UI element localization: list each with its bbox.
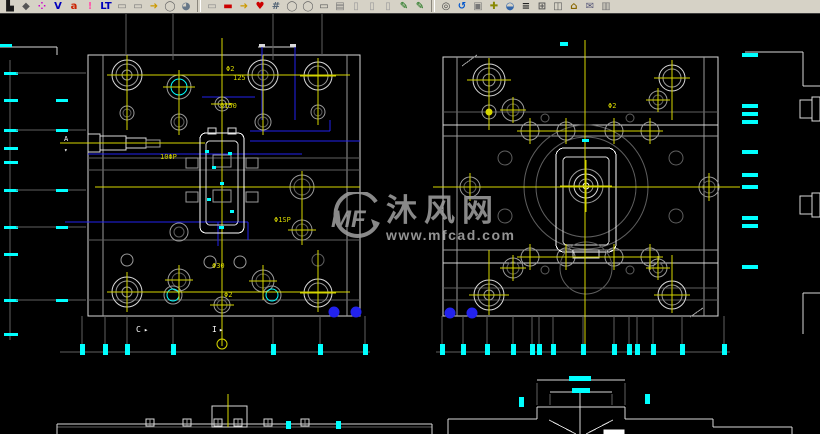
- dimension-tick: [742, 150, 758, 154]
- toolbar-icon-21[interactable]: ▭: [317, 0, 331, 12]
- centerline-crosshair: [560, 160, 612, 212]
- toolbar-icon-32[interactable]: ✚: [487, 0, 501, 12]
- toolbar-icon-18[interactable]: #: [269, 0, 283, 12]
- toolbar-icon-2[interactable]: ◆: [19, 0, 33, 12]
- toolbar-separator: [197, 0, 201, 12]
- bottom-right-view: [448, 376, 792, 434]
- dimension-tick: [4, 129, 18, 132]
- dimension-tick: [582, 139, 589, 142]
- dimension-tick: [4, 161, 18, 164]
- centerline-crosshair: [646, 88, 670, 112]
- dimension-tick: [4, 333, 18, 336]
- dimension-tick: [259, 44, 265, 47]
- dimension-tick: [551, 344, 556, 355]
- toolbar-separator: [431, 0, 435, 12]
- dimension-tick: [651, 344, 656, 355]
- toolbar: ▙◆⁘Va!LT▭▭➜◯◕▭▬➜♥#◯◯▭▤▯▯▯✎✎◎↺▣✚◒≡⊞◫⌂✉▥: [0, 0, 820, 14]
- toolbar-icon-9[interactable]: ▭: [131, 0, 145, 12]
- centerline-crosshair: [500, 255, 526, 281]
- dimension-tick: [627, 344, 632, 355]
- dimension-tick: [742, 120, 758, 124]
- dimension-tick: [461, 344, 466, 355]
- dimension-tick: [56, 189, 68, 192]
- toolbar-icon-26[interactable]: ✎: [397, 0, 411, 12]
- toolbar-icon-35[interactable]: ⊞: [535, 0, 549, 12]
- dimension-tick: [271, 344, 276, 355]
- drawing-label: ▸: [144, 326, 148, 334]
- toolbar-icon-36[interactable]: ◫: [551, 0, 565, 12]
- toolbar-icon-38[interactable]: ✉: [583, 0, 597, 12]
- drawing-label: A: [64, 135, 69, 143]
- drawing-label: 125: [233, 74, 246, 82]
- toolbar-icon-27[interactable]: ✎: [413, 0, 427, 12]
- cad-application-window: ▙◆⁘Va!LT▭▭➜◯◕▭▬➜♥#◯◯▭▤▯▯▯✎✎◎↺▣✚◒≡⊞◫⌂✉▥ Φ…: [0, 0, 820, 434]
- dimension-tick: [80, 344, 85, 355]
- dimension-tick: [205, 150, 209, 153]
- dimension-tick: [645, 394, 650, 404]
- bottom-left-view: [57, 394, 432, 434]
- dimension-tick: [228, 152, 232, 155]
- dimension-tick: [612, 344, 617, 355]
- dimension-tick: [125, 344, 130, 355]
- dimension-tick: [4, 72, 18, 75]
- toolbar-icon-23[interactable]: ▯: [349, 0, 363, 12]
- dimension-tick: [56, 299, 68, 302]
- cad-drawing[interactable]: Φ2125Φ15010ΦPΦ1SPΦ30Φ2C▸I▸A▾Φ2: [0, 14, 820, 434]
- dimension-tick: [4, 299, 18, 302]
- right-edge-view: [742, 52, 820, 334]
- toolbar-icon-6[interactable]: !: [83, 0, 97, 12]
- dimension-tick: [4, 147, 18, 150]
- dimension-tick: [220, 182, 224, 185]
- toolbar-icon-1[interactable]: ▙: [3, 0, 17, 12]
- drawing-label: C: [136, 325, 141, 334]
- dimension-tick: [4, 99, 18, 102]
- dimension-tick: [207, 198, 211, 201]
- dimension-tick: [572, 388, 590, 393]
- drawing-label: Φ30: [212, 262, 225, 270]
- toolbar-icon-10[interactable]: ➜: [147, 0, 161, 12]
- dimension-tick: [742, 53, 758, 57]
- toolbar-icon-30[interactable]: ↺: [455, 0, 469, 12]
- dimension-tick: [742, 112, 758, 116]
- dimension-tick: [230, 210, 234, 213]
- dimension-tick: [742, 173, 758, 177]
- toolbar-icon-39[interactable]: ▥: [599, 0, 613, 12]
- dimension-tick: [742, 224, 758, 228]
- drawing-label: ▸: [219, 326, 223, 334]
- right-view: Φ2: [433, 40, 740, 346]
- centerline-crosshair: [500, 97, 526, 123]
- toolbar-icon-3[interactable]: ⁘: [35, 0, 49, 12]
- drawing-label: Φ2: [608, 102, 616, 110]
- dimension-tick: [722, 344, 727, 355]
- drawing-label: Φ1SP: [274, 216, 291, 224]
- drawing-label: I: [212, 325, 217, 334]
- left-view: Φ2125Φ15010ΦPΦ1SPΦ30Φ2C▸I▸A▾: [0, 38, 361, 349]
- dimension-tick: [511, 344, 516, 355]
- dimension-tick: [0, 44, 12, 47]
- toolbar-icon-8[interactable]: ▭: [115, 0, 129, 12]
- drawing-label: ▾: [64, 147, 68, 154]
- drawing-label: Φ2: [226, 65, 234, 73]
- toolbar-icon-14[interactable]: ▭: [205, 0, 219, 12]
- dimension-tick: [56, 226, 68, 229]
- toolbar-icon-25[interactable]: ▯: [381, 0, 395, 12]
- toolbar-icon-20[interactable]: ◯: [301, 0, 315, 12]
- toolbar-icon-17[interactable]: ♥: [253, 0, 267, 12]
- right-view-dimensions: [436, 316, 730, 355]
- drawing-label: 10ΦP: [160, 153, 177, 161]
- dimension-tick: [56, 99, 68, 102]
- toolbar-icon-34[interactable]: ≡: [519, 0, 533, 12]
- dimension-tick: [336, 421, 341, 429]
- toolbar-icon-33[interactable]: ◒: [503, 0, 517, 12]
- dimension-tick: [519, 397, 524, 407]
- dimension-tick: [4, 189, 18, 192]
- dimension-tick: [742, 185, 758, 189]
- dimension-tick: [569, 376, 591, 381]
- drawing-label: Φ150: [220, 102, 237, 110]
- dimension-tick: [363, 344, 368, 355]
- toolbar-icon-7[interactable]: LT: [99, 0, 113, 12]
- drawing-label: Φ2: [224, 291, 232, 299]
- toolbar-icon-4[interactable]: V: [51, 0, 65, 12]
- toolbar-icon-12[interactable]: ◕: [179, 0, 193, 12]
- dimension-tick: [742, 104, 758, 108]
- dimension-tick: [286, 421, 291, 429]
- toolbar-icon-22[interactable]: ▤: [333, 0, 347, 12]
- dimension-tick: [56, 129, 68, 132]
- toolbar-icon-strip: ▙◆⁘Va!LT▭▭➜◯◕▭▬➜♥#◯◯▭▤▯▯▯✎✎◎↺▣✚◒≡⊞◫⌂✉▥: [2, 0, 614, 12]
- dimension-tick: [440, 344, 445, 355]
- dimension-tick: [171, 344, 176, 355]
- left-view-dimensions: [4, 14, 370, 355]
- dimension-tick: [581, 344, 586, 355]
- dimension-tick: [4, 226, 18, 229]
- dimension-tick: [530, 344, 535, 355]
- dimension-tick: [4, 253, 18, 256]
- dimension-tick: [290, 44, 296, 47]
- dimension-tick: [560, 42, 568, 46]
- toolbar-icon-19[interactable]: ◯: [285, 0, 299, 12]
- toolbar-icon-16[interactable]: ➜: [237, 0, 251, 12]
- toolbar-icon-11[interactable]: ◯: [163, 0, 177, 12]
- drawing-canvas[interactable]: Φ2125Φ15010ΦPΦ1SPΦ30Φ2C▸I▸A▾Φ2 MF 沐风网 ww…: [0, 14, 820, 434]
- toolbar-icon-37[interactable]: ⌂: [567, 0, 581, 12]
- dimension-tick: [212, 166, 216, 169]
- dimension-tick: [742, 216, 758, 220]
- dimension-tick: [537, 344, 542, 355]
- toolbar-icon-15[interactable]: ▬: [221, 0, 235, 12]
- dimension-tick: [485, 344, 490, 355]
- toolbar-icon-31[interactable]: ▣: [471, 0, 485, 12]
- toolbar-icon-24[interactable]: ▯: [365, 0, 379, 12]
- toolbar-icon-5[interactable]: a: [67, 0, 81, 12]
- dimension-tick: [219, 226, 224, 229]
- dimension-tick: [103, 344, 108, 355]
- dimension-tick: [635, 344, 640, 355]
- dimension-tick: [318, 344, 323, 355]
- toolbar-icon-29[interactable]: ◎: [439, 0, 453, 12]
- dimension-tick: [742, 265, 758, 269]
- dimension-tick: [680, 344, 685, 355]
